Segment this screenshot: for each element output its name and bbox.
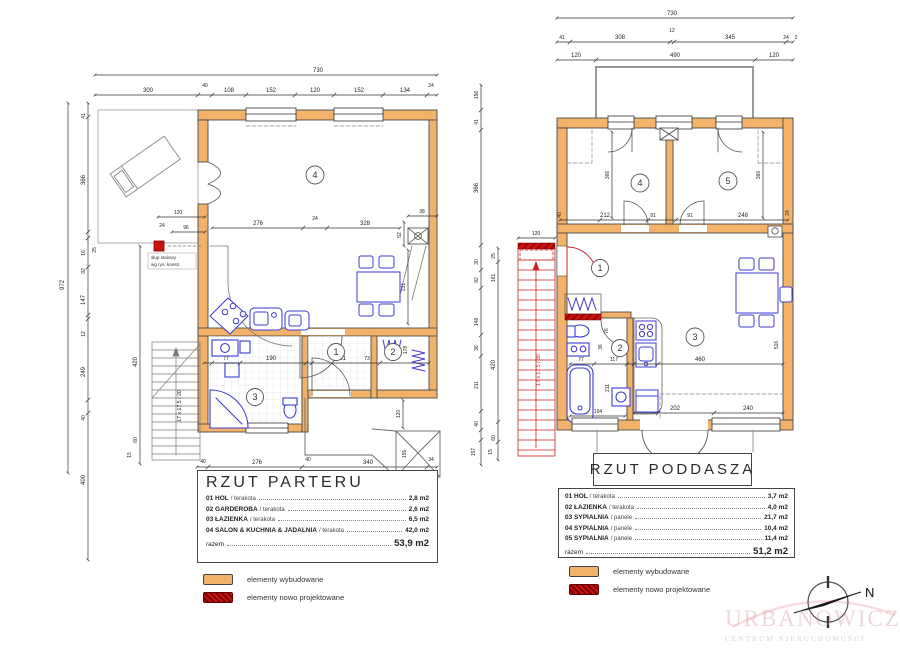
dim-label: 12 — [669, 28, 675, 34]
row-material: / terakota — [231, 494, 256, 505]
dim-label: 276 — [253, 221, 264, 227]
dim-label: 240 — [743, 406, 754, 412]
row-leader — [347, 531, 402, 532]
built-swatch-icon — [569, 566, 599, 577]
room-number: 3 — [252, 392, 257, 402]
row-area: 42,0 m2 — [405, 526, 429, 537]
dim-label: 60 — [491, 435, 497, 441]
row-leader — [635, 539, 761, 540]
row-material: / terakota — [250, 515, 275, 526]
parter-title: RZUT PARTERU — [206, 474, 429, 492]
row-material: / terakota — [609, 503, 634, 514]
row-area: 10,4 m2 — [764, 524, 788, 535]
row-area: 11,4 m2 — [765, 534, 789, 545]
dim-label: 420 — [133, 356, 139, 367]
compass-rose: N — [733, 576, 895, 628]
table-row: 03 SYPIALNIA / panele 21,7 m2 — [565, 513, 788, 524]
dim-label: 366 — [81, 174, 87, 185]
row-area: 6,5 m2 — [409, 515, 429, 526]
dim-label: 38 — [419, 209, 425, 215]
dim-label: 340 — [363, 460, 374, 466]
poddasze-legend: elementy wybudowane elementy nowo projek… — [569, 566, 710, 602]
dim-label: 730 — [667, 11, 678, 17]
poddasze-title: RZUT PODDASZA — [590, 461, 755, 478]
dim-label: 41 — [559, 35, 565, 41]
attic-bottom-windows — [572, 418, 780, 431]
row-material: / terakota — [260, 505, 285, 516]
parter-table: RZUT PARTERU 01 HOL / terakota 2,8 m2 02… — [197, 470, 438, 563]
poddasze-table: 01 HOL / terakota 3,7 m2 02 ŁAZIENKA / t… — [558, 488, 795, 558]
dim-label: 249 — [81, 366, 87, 377]
flue-box — [768, 226, 782, 237]
table-total-row: razem 51,2 m2 — [565, 547, 788, 559]
dim-label: 40 — [200, 459, 206, 465]
row-material: / panele — [611, 524, 632, 535]
dim-label: 328 — [360, 221, 371, 227]
dim-label: 345 — [725, 35, 736, 41]
outdoor-stairs — [152, 342, 200, 460]
row-material: / panele — [611, 534, 632, 545]
dim-label: 120 — [532, 231, 541, 237]
dim-label: 25 — [491, 253, 497, 259]
dim-label: 15 — [488, 449, 494, 455]
dim-label: 972 — [60, 279, 66, 290]
dim-label: 120 — [310, 88, 321, 94]
row-area: 2,8 m2 — [409, 494, 429, 505]
dim-label: 40 — [202, 83, 208, 89]
table-row: 03 ŁAZIENKA / terakota 6,5 m2 — [206, 515, 429, 526]
column-note: wg rys. konstr. — [151, 262, 180, 267]
dim-label: 91 — [687, 213, 693, 219]
kitchenette-fixtures — [636, 321, 658, 412]
dim-label: 76 — [604, 328, 610, 334]
dim-label: 16 — [81, 250, 87, 256]
row-leader — [637, 508, 765, 509]
dormer-windows — [608, 116, 742, 129]
terrace-outline — [98, 110, 198, 243]
table-row: 05 SYPIALNIA / panele 11,4 m2 — [565, 534, 788, 545]
total-label: razem — [206, 540, 224, 551]
dim-label: 24 — [428, 83, 434, 89]
stairs-note: 17 x 17,5 / 20 — [177, 390, 183, 422]
dim-label: 30 — [474, 259, 480, 265]
row-leader — [635, 518, 761, 519]
deck-chair — [110, 136, 180, 197]
dim-label: 194 — [594, 409, 603, 415]
legend-item-new: elementy nowo projektowane — [569, 584, 710, 595]
row-leader — [259, 499, 406, 500]
dim-label: 24 — [785, 210, 791, 216]
total-area: 51,2 m2 — [753, 547, 788, 558]
dim-label: 120 — [396, 410, 402, 419]
legend-label: elementy nowo projektowane — [247, 593, 344, 602]
legend-item-built: elementy wybudowane — [203, 574, 344, 585]
dim-label: 52 — [397, 232, 403, 238]
row-material: / panele — [611, 513, 632, 524]
row-material: / terakota — [319, 526, 344, 537]
poddasze-mid-dims — [560, 132, 788, 222]
dim-label: 202 — [670, 406, 681, 412]
total-area: 53,9 m2 — [394, 539, 429, 550]
row-leader — [288, 510, 406, 511]
table-row: 02 ŁAZIENKA / terakota 4,0 m2 — [565, 503, 788, 514]
row-leader — [227, 545, 391, 546]
kitchen-sink — [250, 308, 309, 330]
dim-label: 92 — [474, 277, 480, 283]
new-swatch-icon — [203, 592, 233, 603]
dim-label: 366 — [605, 171, 611, 180]
dim-label: 24 — [783, 35, 789, 41]
dim-label: 155 — [402, 450, 408, 459]
dim-label: 120 — [174, 210, 183, 216]
poddasze-room-circles — [592, 172, 738, 357]
row-area: 3,7 m2 — [768, 492, 788, 503]
row-leader — [586, 553, 750, 554]
row-name: 04 SALON & KUCHNIA & JADALNIA — [206, 526, 317, 537]
dim-label: 366 — [474, 182, 480, 193]
hol-hangers — [568, 298, 596, 310]
dim-label: 2 — [795, 35, 798, 41]
table-row: 02 GARDEROBA / terakota 2,6 m2 — [206, 505, 429, 516]
row-name: 02 GARDEROBA — [206, 505, 258, 516]
entry-door-gap — [557, 246, 567, 276]
row-name: 04 SYPIALNIA — [565, 524, 609, 535]
row-area: 2,6 m2 — [409, 505, 429, 516]
dim-label: 92 — [81, 268, 87, 274]
floorplan-sheet: 730 300 40 108 152 120 152 134 24 972 41… — [0, 0, 900, 665]
dim-label: 96 — [183, 225, 189, 231]
parter-legend: elementy wybudowane elementy nowo projek… — [203, 574, 344, 610]
dim-label: 40 — [81, 415, 87, 421]
dim-label: 41 — [81, 113, 87, 119]
dim-label: 40 — [305, 457, 311, 463]
dim-label: 91 — [650, 213, 656, 219]
dim-label: 108 — [224, 88, 235, 94]
dim-label: 152 — [354, 88, 365, 94]
table-row: 04 SYPIALNIA / panele 10,4 m2 — [565, 524, 788, 535]
dim-label: 120 — [571, 53, 582, 59]
dining-table — [357, 256, 400, 316]
dim-label: 36 — [598, 344, 604, 350]
row-name: 01 HOL — [565, 492, 588, 503]
dim-label: 117 — [610, 357, 618, 363]
dim-label: 34 — [428, 457, 434, 463]
row-leader — [618, 497, 765, 498]
dim-label: 40 — [557, 212, 563, 218]
chimney-block — [660, 128, 678, 140]
dim-label: 24 — [312, 216, 318, 222]
dim-label: 134 — [400, 88, 411, 94]
dim-label: 148 — [474, 318, 480, 327]
dim-label: 516 — [774, 341, 780, 350]
row-leader — [635, 529, 761, 530]
dim-label: 152 — [266, 88, 277, 94]
room-number: 1 — [333, 347, 338, 357]
row-area: 21,7 m2 — [764, 513, 788, 524]
table-row: 04 SALON & KUCHNIA & JADALNIA / terakota… — [206, 526, 429, 537]
compass-north-label: N — [865, 585, 874, 600]
dim-label: 60 — [133, 437, 139, 443]
table-row: 01 HOL / terakota 2,8 m2 — [206, 494, 429, 505]
column-note: słup stalowy — [151, 255, 177, 260]
dim-label: 41 — [474, 119, 480, 125]
room-number: 3 — [692, 332, 697, 342]
dim-label: 157 — [471, 448, 477, 457]
parter-left-dims — [68, 103, 140, 560]
poddasze-plan: 730 12 41 308 345 24 2 120 490 120 156 4… — [471, 11, 798, 465]
row-area: 4,0 m2 — [768, 503, 788, 514]
new-stairs-wall — [518, 243, 555, 249]
poddasze-title-box: RZUT PODDASZA — [593, 453, 752, 486]
legend-item-built: elementy wybudowane — [569, 566, 710, 577]
legend-label: elementy wybudowane — [613, 567, 689, 576]
built-swatch-icon — [203, 574, 233, 585]
dim-label: 420 — [491, 359, 497, 370]
dim-label: 308 — [615, 35, 626, 41]
dim-label: 15 — [127, 452, 133, 458]
dim-label: 25 — [92, 247, 98, 253]
dim-label: 190 — [266, 356, 277, 362]
dim-label: 178 — [403, 346, 409, 355]
dim-label: 120 — [769, 53, 780, 59]
dim-label: 77 — [578, 357, 584, 363]
legend-item-new: elementy nowo projektowane — [203, 592, 344, 603]
room-number: 4 — [312, 170, 317, 180]
dim-label: 147 — [81, 294, 87, 305]
dim-label: 276 — [252, 460, 263, 466]
new-staircase — [518, 248, 555, 456]
legend-label: elementy wybudowane — [247, 575, 323, 584]
legend-label: elementy nowo projektowane — [613, 585, 710, 594]
table-total-row: razem 53,9 m2 — [206, 539, 429, 551]
table-row: 01 HOL / terakota 3,7 m2 — [565, 492, 788, 503]
room-number: 5 — [725, 176, 730, 186]
watermark-swoosh — [733, 602, 895, 627]
dim-label: 156 — [474, 91, 480, 100]
roof-outline — [596, 67, 753, 118]
dim-label: 730 — [313, 68, 324, 74]
dim-label: 366 — [756, 171, 762, 180]
dim-label: 36 — [474, 345, 480, 351]
dim-label: 211 — [605, 384, 611, 392]
dim-label: 24 — [159, 223, 165, 229]
dim-label: 400 — [81, 474, 87, 485]
room-number: 4 — [637, 178, 642, 188]
new-swatch-icon — [569, 584, 599, 595]
room-number: 2 — [617, 343, 622, 353]
dim-label: 73 — [364, 356, 370, 362]
dim-label: 212 — [600, 213, 611, 219]
dim-label: 40 — [474, 421, 480, 427]
dim-label: 300 — [143, 88, 154, 94]
dim-label: 161 — [491, 274, 497, 283]
row-name: 02 ŁAZIENKA — [565, 503, 607, 514]
dim-label: 460 — [695, 357, 706, 363]
dim-label: 248 — [738, 213, 749, 219]
dim-label: 231 — [401, 283, 407, 292]
steel-column — [154, 241, 164, 251]
row-leader — [278, 520, 406, 521]
room-number: 2 — [390, 347, 395, 357]
dim-label: 211 — [474, 381, 480, 389]
stairs-note: 17 x 17,5 / 30 — [536, 354, 542, 386]
plan-drawing: 730 300 40 108 152 120 152 134 24 972 41… — [0, 0, 900, 665]
row-name: 01 HOL — [206, 494, 229, 505]
row-name: 03 SYPIALNIA — [565, 513, 609, 524]
dim-label: 490 — [670, 53, 681, 59]
row-material: / terakota — [590, 492, 615, 503]
row-name: 05 SYPIALNIA — [565, 534, 609, 545]
dim-label: 12 — [81, 331, 87, 337]
new-wall-segment — [565, 314, 601, 320]
dim-label: 77 — [223, 356, 229, 362]
row-name: 03 ŁAZIENKA — [206, 515, 248, 526]
room-number: 1 — [597, 263, 602, 273]
total-label: razem — [565, 548, 583, 559]
